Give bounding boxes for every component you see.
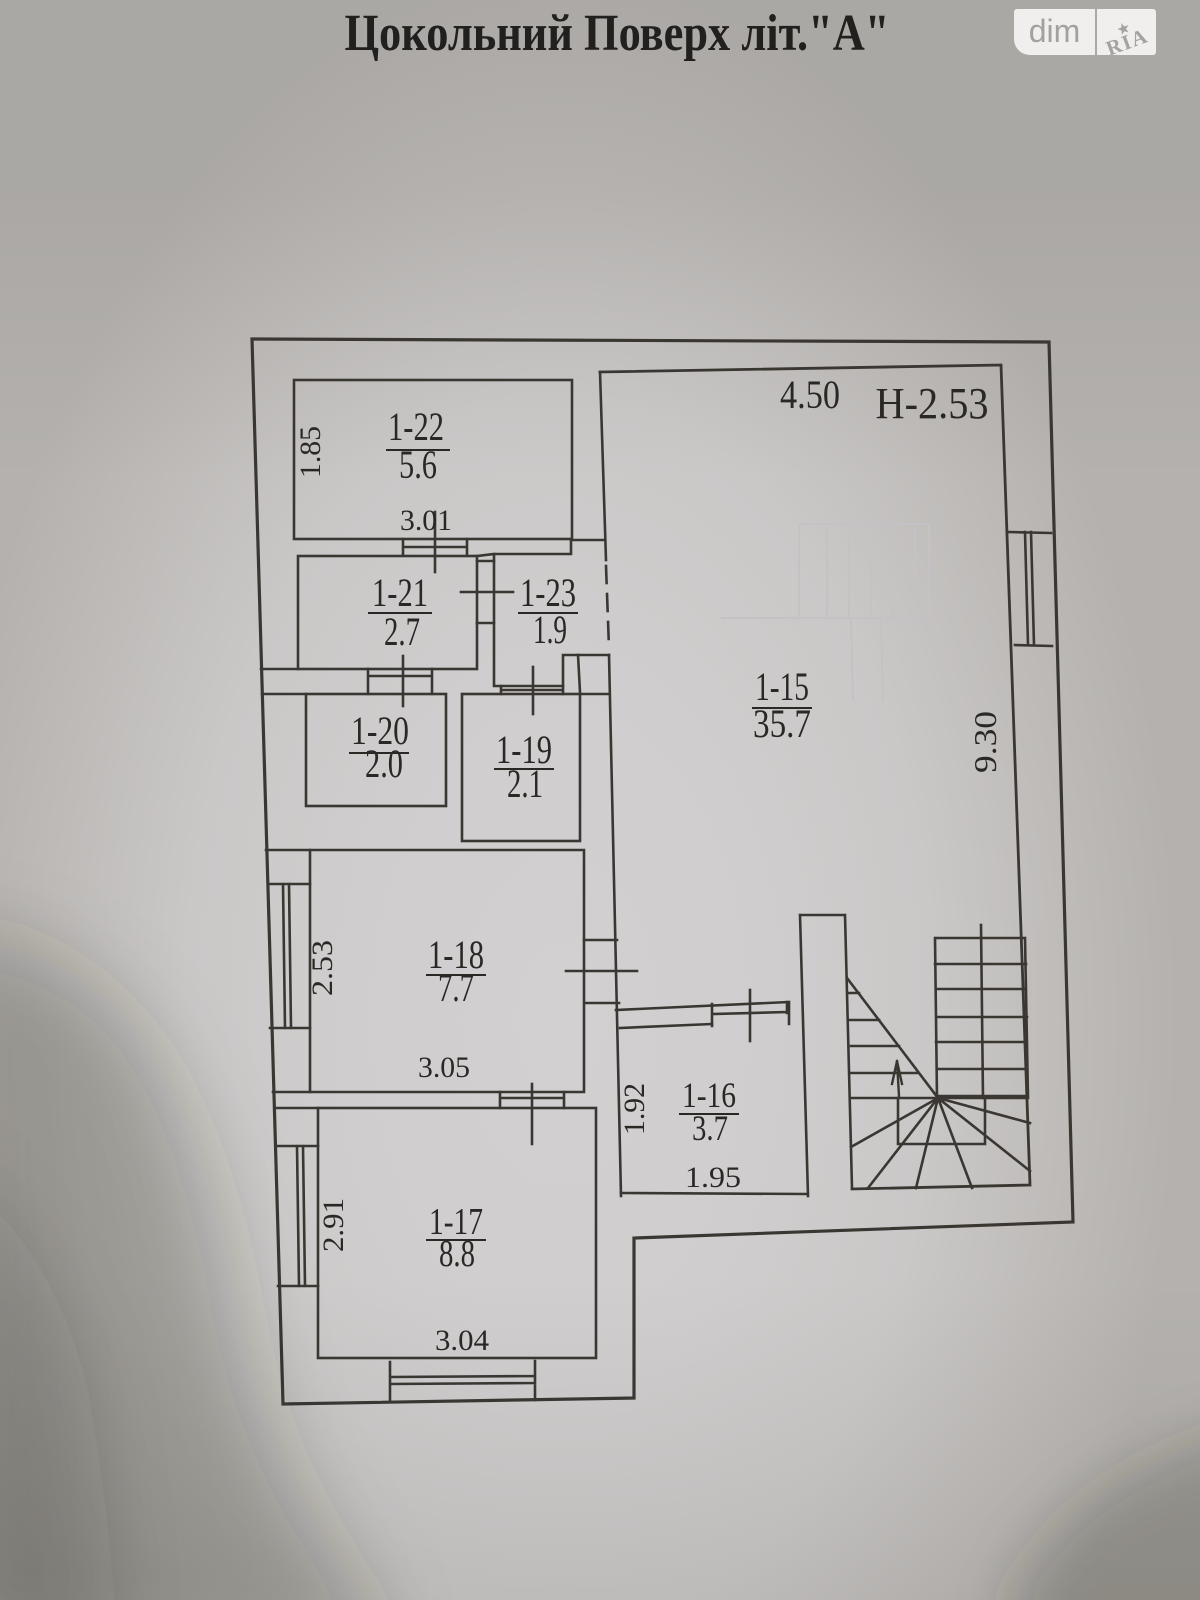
- svg-text:4.50: 4.50: [780, 372, 840, 417]
- svg-text:7.7: 7.7: [438, 965, 474, 1010]
- svg-text:2.91: 2.91: [317, 1198, 350, 1252]
- svg-text:9.30: 9.30: [967, 711, 1003, 773]
- svg-text:2.0: 2.0: [365, 741, 403, 786]
- svg-text:2.1: 2.1: [507, 761, 543, 806]
- svg-text:2.53: 2.53: [306, 940, 339, 996]
- svg-text:3.05: 3.05: [418, 1051, 470, 1084]
- svg-text:3.04: 3.04: [435, 1324, 489, 1357]
- svg-text:5.6: 5.6: [399, 442, 437, 487]
- svg-text:RIA: RIA: [1103, 23, 1152, 55]
- svg-text:Н-2.53: Н-2.53: [876, 379, 989, 428]
- svg-text:1.95: 1.95: [685, 1161, 741, 1194]
- svg-text:1.92: 1.92: [618, 1083, 651, 1135]
- svg-text:1.85: 1.85: [294, 426, 327, 478]
- svg-text:3.01: 3.01: [400, 504, 452, 537]
- svg-text:Цокольний Поверх літ."А": Цокольний Поверх літ."А": [345, 5, 890, 62]
- svg-text:2.7: 2.7: [384, 609, 420, 654]
